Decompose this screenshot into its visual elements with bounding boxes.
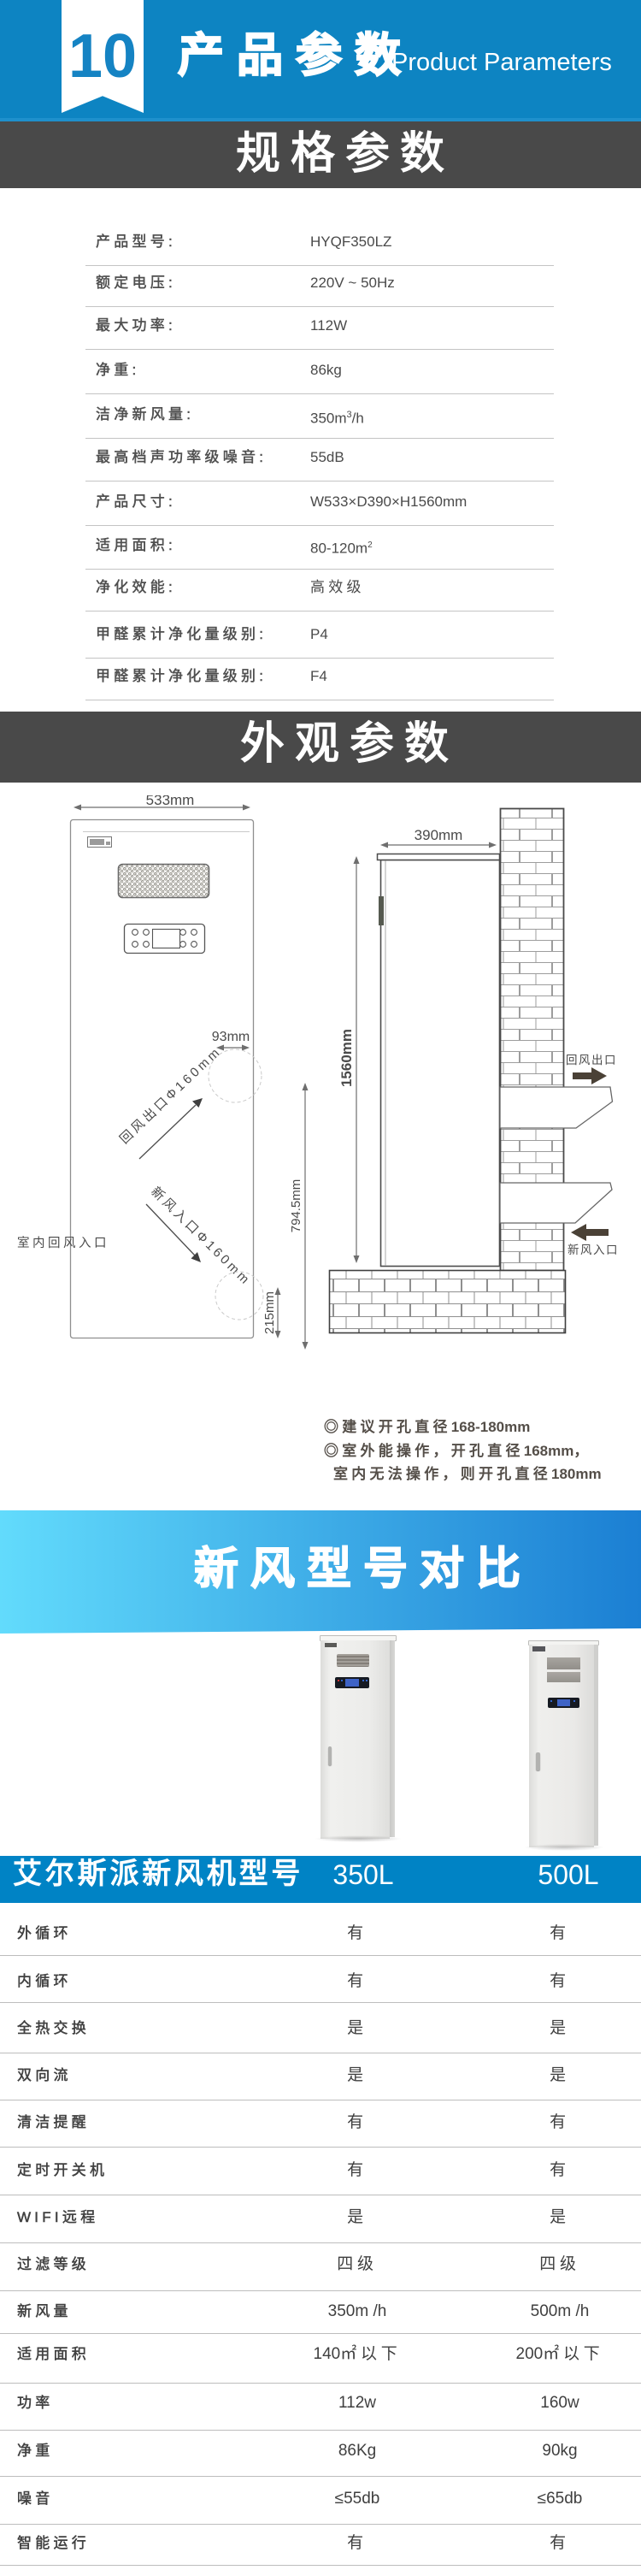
svg-text:新风入口: 新风入口 <box>567 1244 619 1256</box>
svg-text:回风出口: 回风出口 <box>566 1054 617 1066</box>
svg-text:93mm: 93mm <box>212 1030 250 1044</box>
svg-text:215mm: 215mm <box>262 1291 277 1334</box>
svg-text:390mm: 390mm <box>415 827 463 843</box>
svg-text:794.5mm: 794.5mm <box>289 1179 303 1233</box>
svg-text:1560mm: 1560mm <box>338 1029 355 1087</box>
svg-text:室内回风入口: 室内回风入口 <box>17 1236 109 1250</box>
svg-text:533mm: 533mm <box>146 795 195 808</box>
